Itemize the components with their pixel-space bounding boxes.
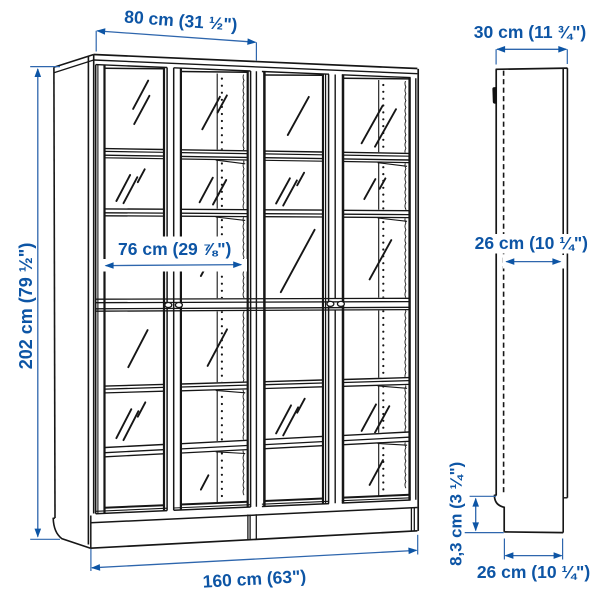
svg-text:30 cm (11 ¾"): 30 cm (11 ¾") [474,22,586,42]
svg-text:76 cm (29 ⅞"): 76 cm (29 ⅞") [118,239,231,259]
svg-text:202 cm (79 ½"): 202 cm (79 ½") [16,243,36,370]
svg-text:26 cm (10 ¼"): 26 cm (10 ¼") [475,233,588,253]
svg-text:8,3 cm (3 ¼"): 8,3 cm (3 ¼") [446,462,465,566]
svg-text:26 cm (10 ¼"): 26 cm (10 ¼") [477,562,590,582]
